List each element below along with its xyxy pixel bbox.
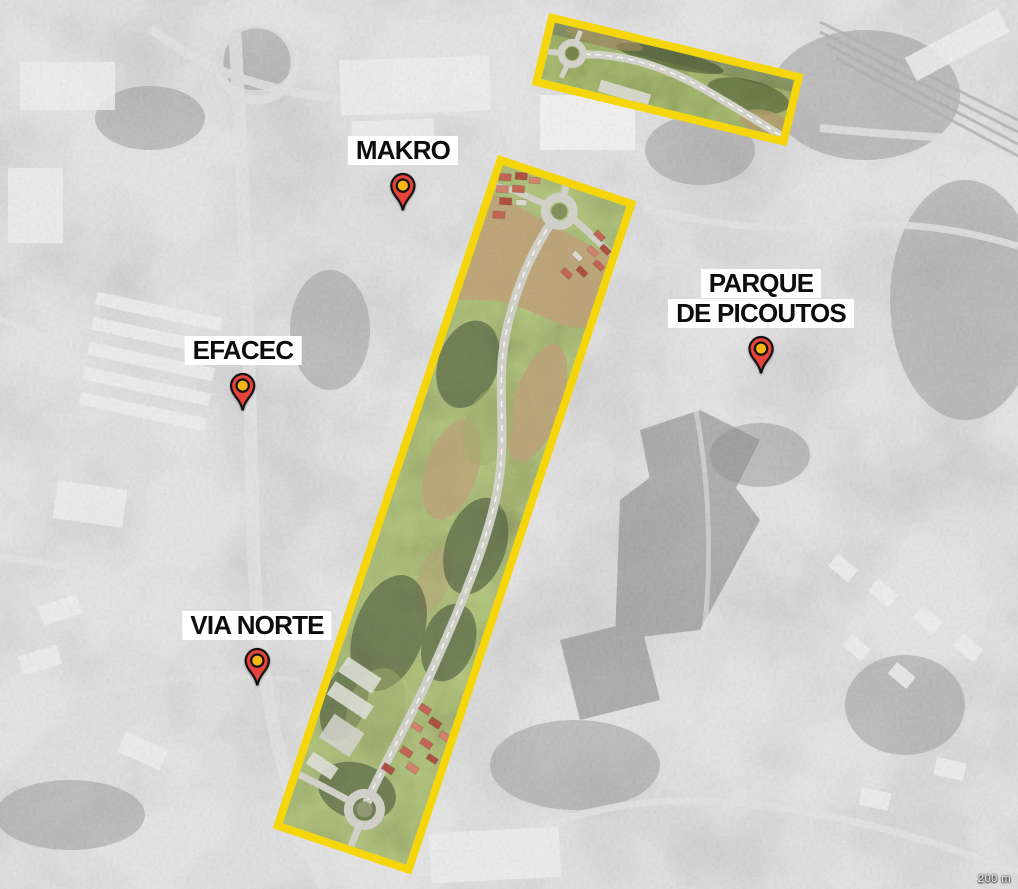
map-pin-icon: [747, 335, 775, 376]
scale-label: 200 m: [978, 873, 1011, 885]
marker-efacec: EFACEC: [185, 336, 302, 413]
map-pin-icon: [389, 172, 417, 213]
label-efacec: EFACEC: [185, 336, 302, 365]
label-makro: MAKRO: [348, 136, 458, 165]
marker-via-norte: VIA NORTE: [182, 611, 331, 688]
marker-makro: MAKRO: [348, 136, 458, 213]
label-via-norte: VIA NORTE: [182, 611, 331, 640]
map-pin-icon: [229, 372, 257, 413]
label-parque-line1: PARQUE: [701, 269, 822, 298]
zone-north-roundabout: [559, 40, 586, 67]
map-pin-icon: [243, 647, 271, 688]
label-parque-line2: DE PICOUTOS: [668, 299, 854, 328]
aerial-map: MAKRO EFACEC VIA NORTE PARQUE DE PICOUTO…: [0, 0, 1018, 889]
marker-parque-de-picoutos: PARQUE DE PICOUTOS: [668, 269, 854, 376]
